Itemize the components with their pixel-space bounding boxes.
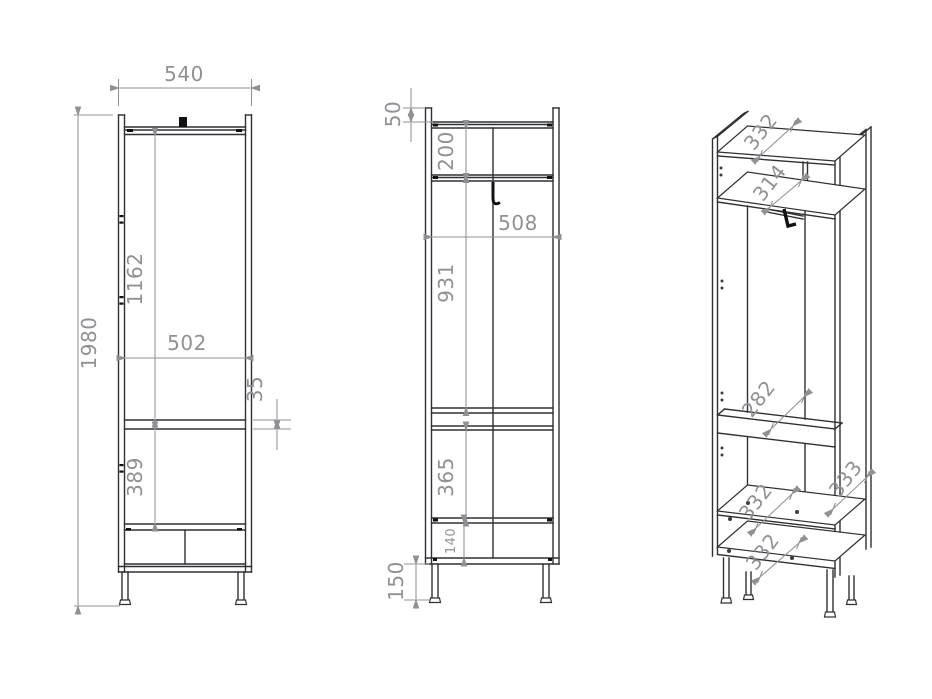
dim-front-upper-interior: 1162 xyxy=(123,137,155,418)
dim-side-drawer-height: 140 xyxy=(444,524,464,557)
upper-shelf xyxy=(718,172,866,215)
dim-front-lower-interior: 389 xyxy=(123,431,155,522)
dim-front-shelf-gap: 35 xyxy=(243,376,291,450)
dim-label-shelf-gap: 35 xyxy=(243,376,267,402)
perspective-cabinet xyxy=(713,111,872,617)
dim-label-drawer-height: 140 xyxy=(444,528,459,554)
bottom-panel xyxy=(718,521,866,561)
dim-front-interior-width: 502 xyxy=(126,331,244,358)
dim-label-interior-depth: 508 xyxy=(498,211,538,235)
fitting-mark xyxy=(126,528,131,531)
dim-label-lower-compartment: 365 xyxy=(434,457,458,497)
dim-label-top-compartment: 200 xyxy=(434,131,458,171)
dim-label-upper-interior: 1162 xyxy=(123,253,147,306)
front-view: 540 1980 1162 502 35 389 xyxy=(74,62,291,606)
fitting-mark xyxy=(127,129,133,132)
side-view: 50 200 508 931 365 140 150 xyxy=(381,88,559,603)
hanger-hook xyxy=(493,182,500,204)
dim-label-front-height: 1980 xyxy=(77,317,101,370)
front-cabinet xyxy=(119,115,252,605)
front-legs xyxy=(120,572,247,605)
drawing-svg: 540 1980 1162 502 35 389 xyxy=(0,0,932,699)
dim-side-hanging-height: 931 xyxy=(434,183,466,407)
perspective-view: 332 314 282 333 332 xyxy=(713,109,872,617)
perspective-legs xyxy=(721,558,857,617)
fitting-mark xyxy=(237,528,242,531)
side-legs xyxy=(430,564,552,603)
dim-label-lower-interior: 389 xyxy=(123,457,147,497)
dim-side-top-compartment: 200 xyxy=(434,130,466,174)
dim-label-front-width: 540 xyxy=(164,62,204,86)
dim-front-width: 540 xyxy=(119,62,252,106)
top-knob xyxy=(179,117,187,127)
technical-drawing-canvas: 540 1980 1162 502 35 389 xyxy=(0,0,932,699)
dim-label-leg-height: 150 xyxy=(384,561,408,601)
dim-side-leg-height: 150 xyxy=(384,561,430,601)
fitting-mark xyxy=(236,129,242,132)
dim-side-lower-compartment: 365 xyxy=(434,431,466,517)
dim-front-height: 1980 xyxy=(74,115,120,606)
dim-label-interior-width: 502 xyxy=(167,331,207,355)
dim-label-top-lip: 50 xyxy=(381,101,405,127)
dim-label-hanging-height: 931 xyxy=(434,263,458,303)
